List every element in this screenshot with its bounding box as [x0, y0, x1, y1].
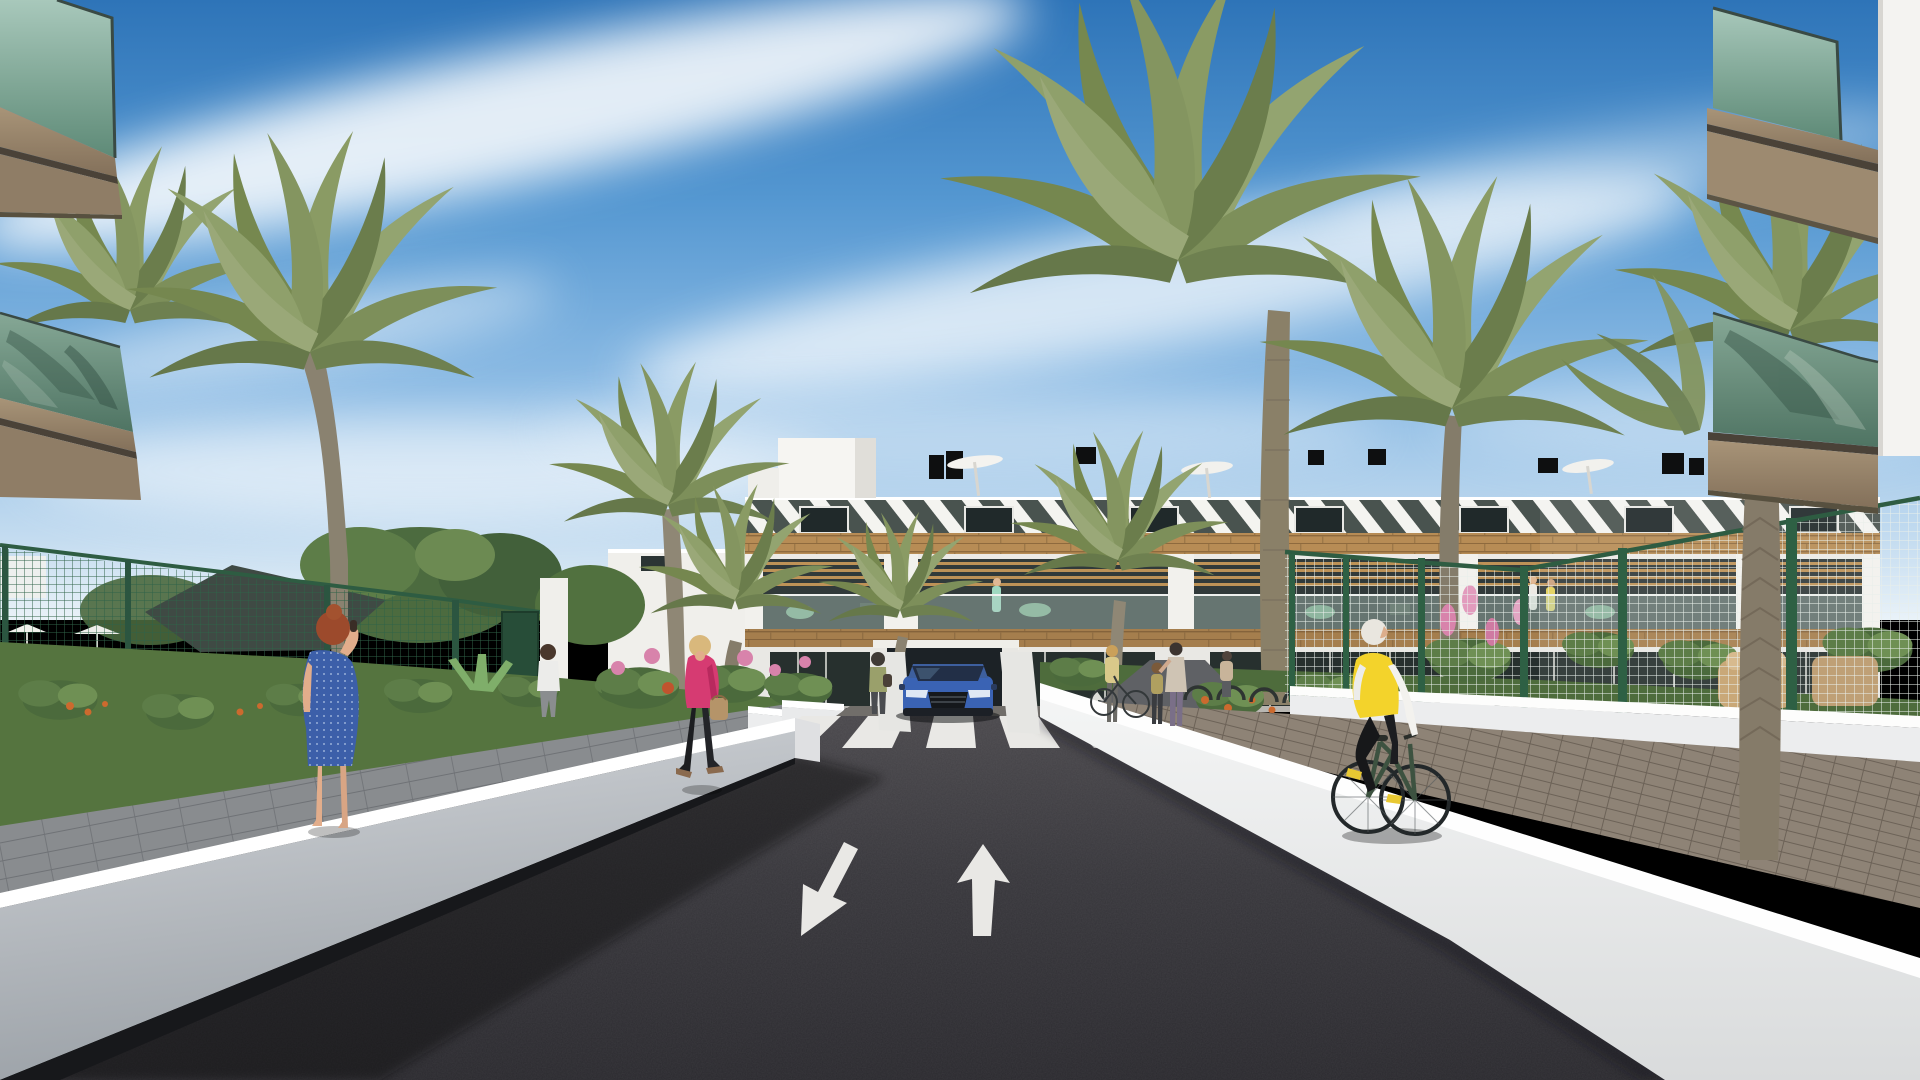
car-bumper: [903, 708, 993, 716]
date-palm-trunk-right: [1739, 470, 1781, 860]
shadow: [682, 785, 722, 795]
car-mirror-left: [899, 684, 905, 690]
face: [695, 651, 705, 661]
tshirt: [537, 661, 560, 691]
right-building-wall: [1878, 0, 1920, 456]
head: [540, 644, 556, 660]
handbag: [710, 698, 728, 720]
bag: [883, 674, 892, 687]
render-viewport: [0, 0, 1920, 1080]
hair-bun: [326, 604, 342, 620]
car-headlight-left: [906, 690, 928, 698]
roof-tower-shade: [855, 438, 876, 498]
phone: [350, 620, 357, 632]
car-mirror-right: [991, 684, 997, 690]
shadow: [308, 826, 360, 838]
car-grille: [928, 692, 968, 710]
head: [871, 652, 885, 666]
scene-render: [0, 0, 1920, 1080]
wall-edge-shade: [1878, 0, 1883, 456]
car-suv: [896, 664, 1000, 723]
red-rose: [662, 682, 674, 694]
car-headlight-right: [968, 690, 990, 698]
left-wall-endcap: [795, 718, 820, 762]
foreground-balcony-left-top: [0, 0, 122, 219]
foreground-right-wall: [1878, 0, 1920, 456]
